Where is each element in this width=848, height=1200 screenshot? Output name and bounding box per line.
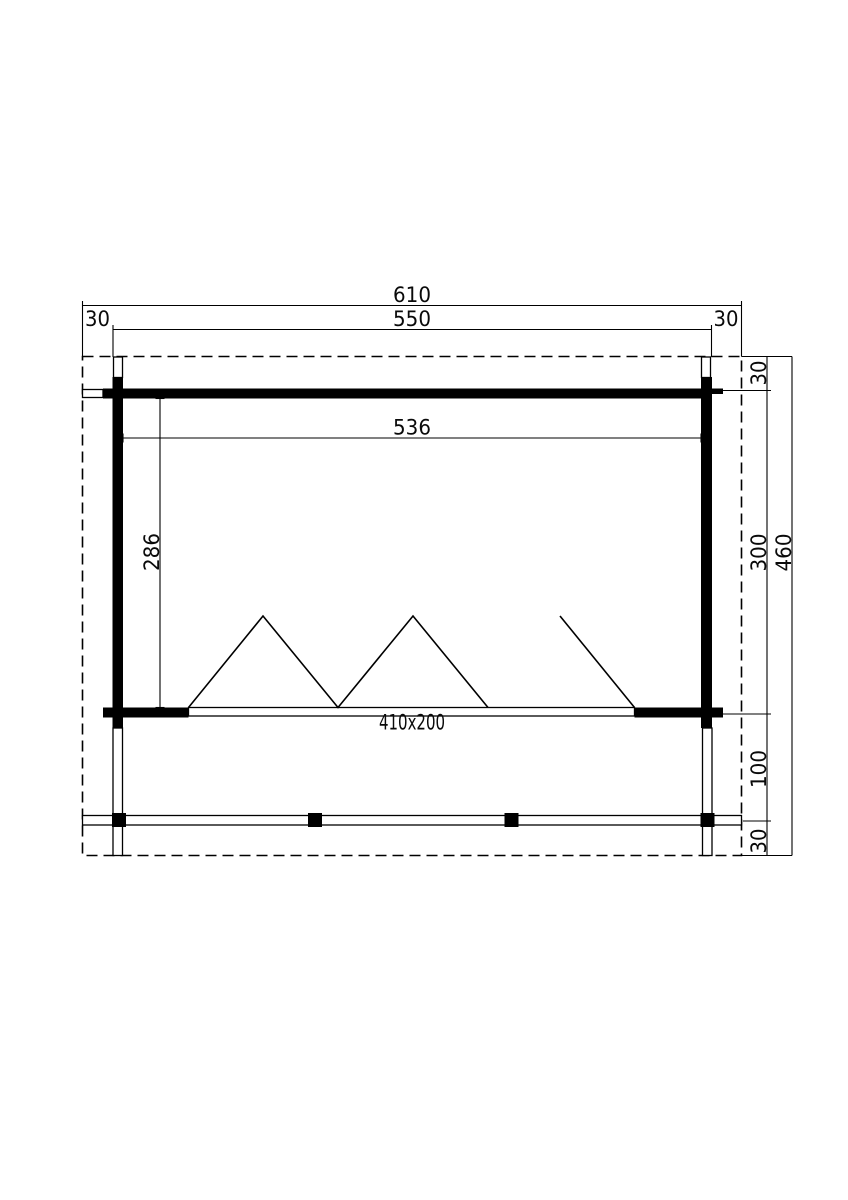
corner-log-ends (113, 357, 713, 389)
corner-log-stub-right (701, 377, 712, 389)
bottom-wall-left-segment (103, 708, 189, 718)
dimension-wall-width: 550 30 30 (85, 307, 739, 331)
door-open-leaf (560, 616, 635, 708)
porch-front-beam (83, 816, 742, 826)
dim-label-overhang-right: 30 (714, 307, 739, 331)
dim-label-overhang-bottom: 30 (747, 829, 771, 854)
porch-post-left (113, 728, 123, 856)
corner-log-stub-left (113, 377, 124, 389)
dim-label-building-depth: 300 (747, 534, 771, 572)
door-size-label: 410x200 (379, 711, 445, 735)
top-wall (103, 389, 712, 399)
door-fold-leaves (189, 616, 489, 708)
dim-label-wall-width: 550 (393, 307, 431, 331)
porch-column-3 (505, 813, 519, 827)
porch-column-1 (112, 813, 126, 827)
dim-label-overhang-left: 30 (85, 307, 110, 331)
dimension-right-chain: 30 300 100 30 460 (723, 357, 796, 856)
dim-label-porch-depth: 100 (747, 750, 771, 788)
corner-log-outline-right (702, 357, 711, 378)
porch-post-right (703, 728, 713, 856)
corner-log-outline-left (114, 357, 123, 378)
left-wall (113, 389, 124, 729)
dim-label-total-depth: 460 (772, 534, 796, 572)
top-wall-end-tick-right (712, 389, 723, 395)
dim-label-inner-width: 536 (393, 416, 431, 440)
drawing-page: 610 550 30 30 410x200 (0, 0, 848, 1200)
folding-door: 410x200 (189, 616, 635, 735)
dimension-inner-depth: 286 (140, 399, 165, 708)
dim-label-inner-depth: 286 (140, 533, 164, 571)
dimension-inner-width: 536 (123, 416, 701, 443)
floor-plan-canvas: 610 550 30 30 410x200 (0, 0, 848, 1200)
roof-edge-board-left (83, 390, 104, 398)
dim-label-overhang-top: 30 (747, 361, 771, 386)
bottom-wall-right-segment (635, 708, 724, 718)
dim-label-total-width: 610 (393, 283, 431, 307)
right-wall (701, 389, 712, 729)
porch (83, 728, 742, 856)
porch-column-4 (701, 813, 715, 827)
dimension-total-width: 610 (83, 283, 742, 307)
porch-column-2 (308, 813, 322, 827)
